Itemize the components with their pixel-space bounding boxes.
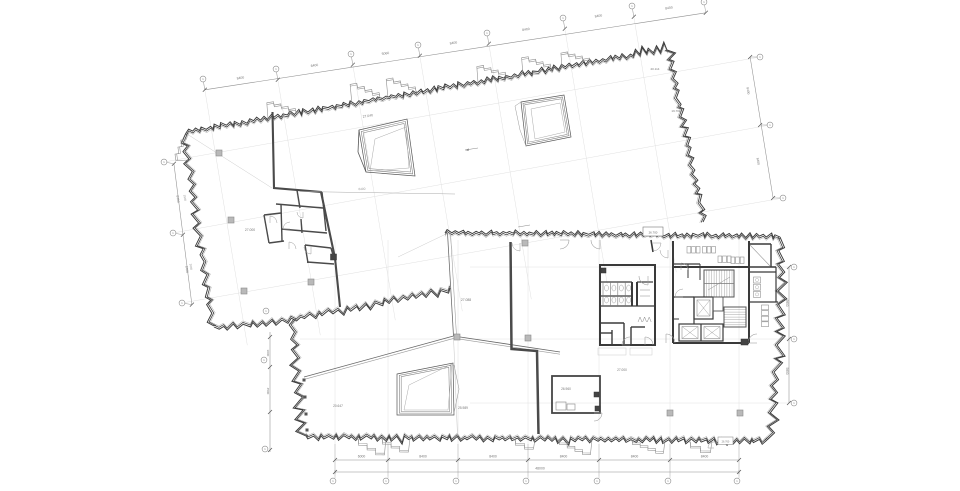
svg-text:8400: 8400 [560,455,568,459]
svg-text:48000: 48000 [535,467,545,471]
svg-text:3000: 3000 [266,350,270,357]
svg-text:4500: 4500 [266,388,270,395]
svg-text:27.088: 27.088 [461,298,471,302]
svg-text:26.760: 26.760 [722,441,730,444]
svg-text:9800: 9800 [785,299,789,306]
svg-text:27.000: 27.000 [245,228,255,232]
svg-text:27.000: 27.000 [617,368,627,372]
svg-text:19.700: 19.700 [671,109,681,113]
svg-text:8400: 8400 [489,455,497,459]
svg-text:6000: 6000 [358,455,366,459]
svg-text:20.647: 20.647 [333,404,343,408]
svg-text:8400: 8400 [701,455,709,459]
svg-text:8400: 8400 [631,455,639,459]
svg-text:8400: 8400 [419,455,427,459]
svg-text:26.960: 26.960 [561,387,571,391]
svg-text:26.700: 26.700 [649,231,658,235]
svg-text:5800: 5800 [785,367,789,374]
svg-text:20.114: 20.114 [651,67,660,71]
svg-text:8400: 8400 [358,187,366,191]
svg-text:25.989: 25.989 [458,406,468,410]
